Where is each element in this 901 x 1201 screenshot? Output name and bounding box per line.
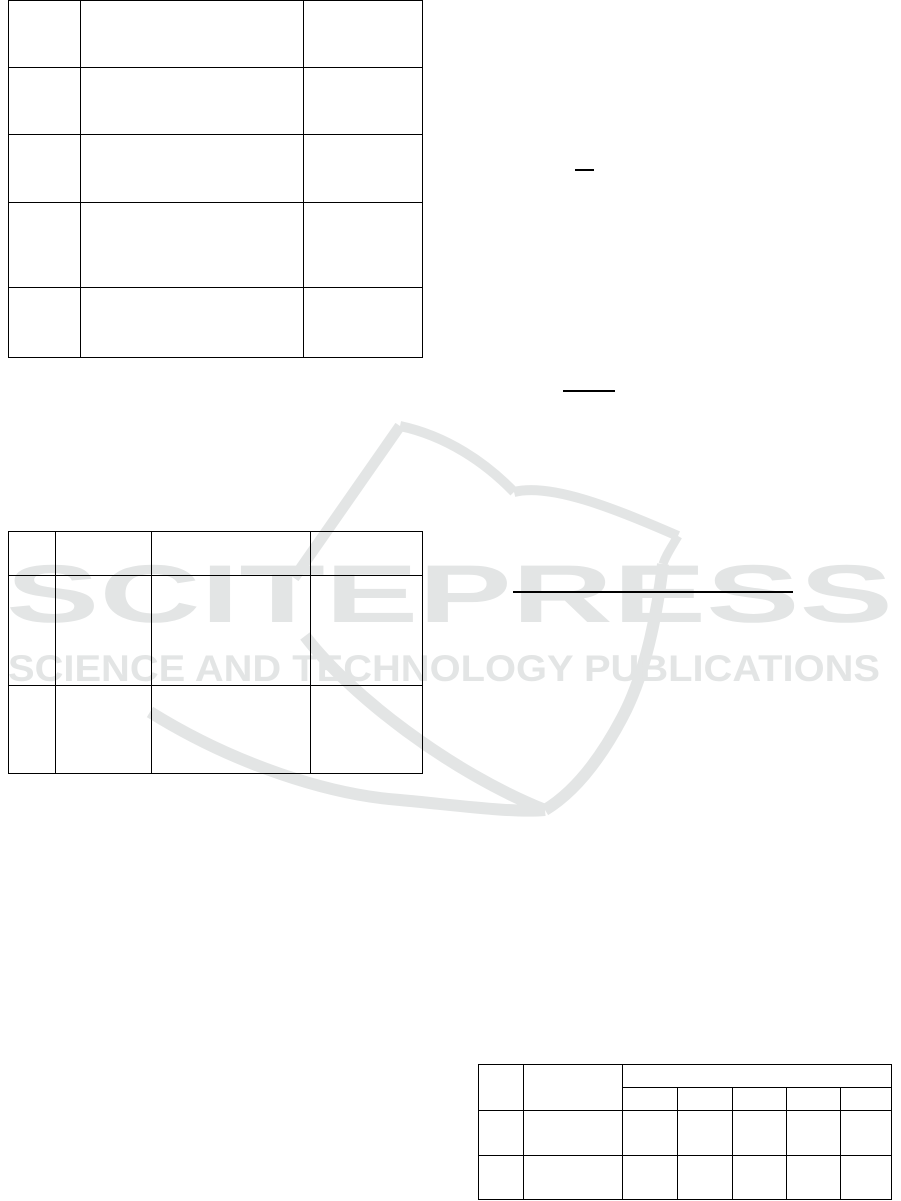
table-cell [9, 576, 56, 686]
table-cell [678, 1111, 733, 1156]
table-cell [304, 68, 423, 135]
table-subheader-cell [787, 1088, 841, 1111]
table-cell [9, 135, 81, 203]
table-header-cell [524, 1065, 623, 1111]
table-cell [9, 532, 56, 576]
table-cell [304, 135, 423, 203]
table-row [9, 135, 423, 203]
table-cell [733, 1111, 787, 1156]
table-cell [81, 135, 304, 203]
underline-rule-long [513, 591, 793, 593]
table-cell [152, 532, 311, 576]
fraction-bar-medium [563, 390, 615, 392]
table-row [479, 1156, 892, 1200]
table-cell [787, 1156, 841, 1200]
table-cell [9, 288, 81, 358]
table-row [9, 686, 423, 774]
paper-page: SCITEPRESS SCIENCE AND TECHNOLOGY PUBLIC… [0, 0, 901, 1201]
table-cell [81, 1, 304, 68]
table-subheader-cell [841, 1088, 892, 1111]
table-group-header-cell [623, 1065, 892, 1088]
table-cell [304, 1, 423, 68]
table-cell [56, 532, 152, 576]
table-row [9, 532, 423, 576]
table-row [9, 203, 423, 288]
table-cell [304, 203, 423, 288]
table-row [9, 68, 423, 135]
table-cell [479, 1111, 524, 1156]
table-bottom-right [478, 1064, 892, 1200]
table-cell [524, 1111, 623, 1156]
table-cell [81, 203, 304, 288]
fraction-bar-small [575, 169, 594, 171]
table-header-row [479, 1065, 892, 1088]
table-cell [311, 576, 423, 686]
table-middle-left [8, 531, 423, 774]
table-cell [9, 68, 81, 135]
table-subheader-cell [733, 1088, 787, 1111]
table-cell [678, 1156, 733, 1200]
logo-left-page-curve [400, 426, 514, 492]
logo-right-edge-curve [545, 564, 663, 810]
table-row [9, 288, 423, 358]
table-cell [841, 1156, 892, 1200]
table-cell [311, 686, 423, 774]
table-cell [81, 68, 304, 135]
table-cell [524, 1156, 623, 1200]
table-cell [9, 686, 56, 774]
table-cell [152, 686, 311, 774]
table-cell [81, 288, 304, 358]
table-cell [56, 576, 152, 686]
table-cell [479, 1156, 524, 1200]
table-cell [623, 1156, 678, 1200]
logo-right-page-curve [514, 490, 678, 536]
table-subheader-cell [678, 1088, 733, 1111]
table-cell [623, 1111, 678, 1156]
table-cell [9, 203, 81, 288]
table-cell [152, 576, 311, 686]
logo-page-tip-fold [663, 536, 678, 564]
table-cell [311, 532, 423, 576]
table-row [9, 576, 423, 686]
table-row [9, 1, 423, 68]
table-cell [304, 288, 423, 358]
table-cell [787, 1111, 841, 1156]
table-cell [841, 1111, 892, 1156]
table-cell [733, 1156, 787, 1200]
table-cell [56, 686, 152, 774]
table-cell [9, 1, 81, 68]
table-top-left [8, 0, 423, 358]
table-row [479, 1111, 892, 1156]
table-subheader-cell [623, 1088, 678, 1111]
table-header-cell [479, 1065, 524, 1111]
